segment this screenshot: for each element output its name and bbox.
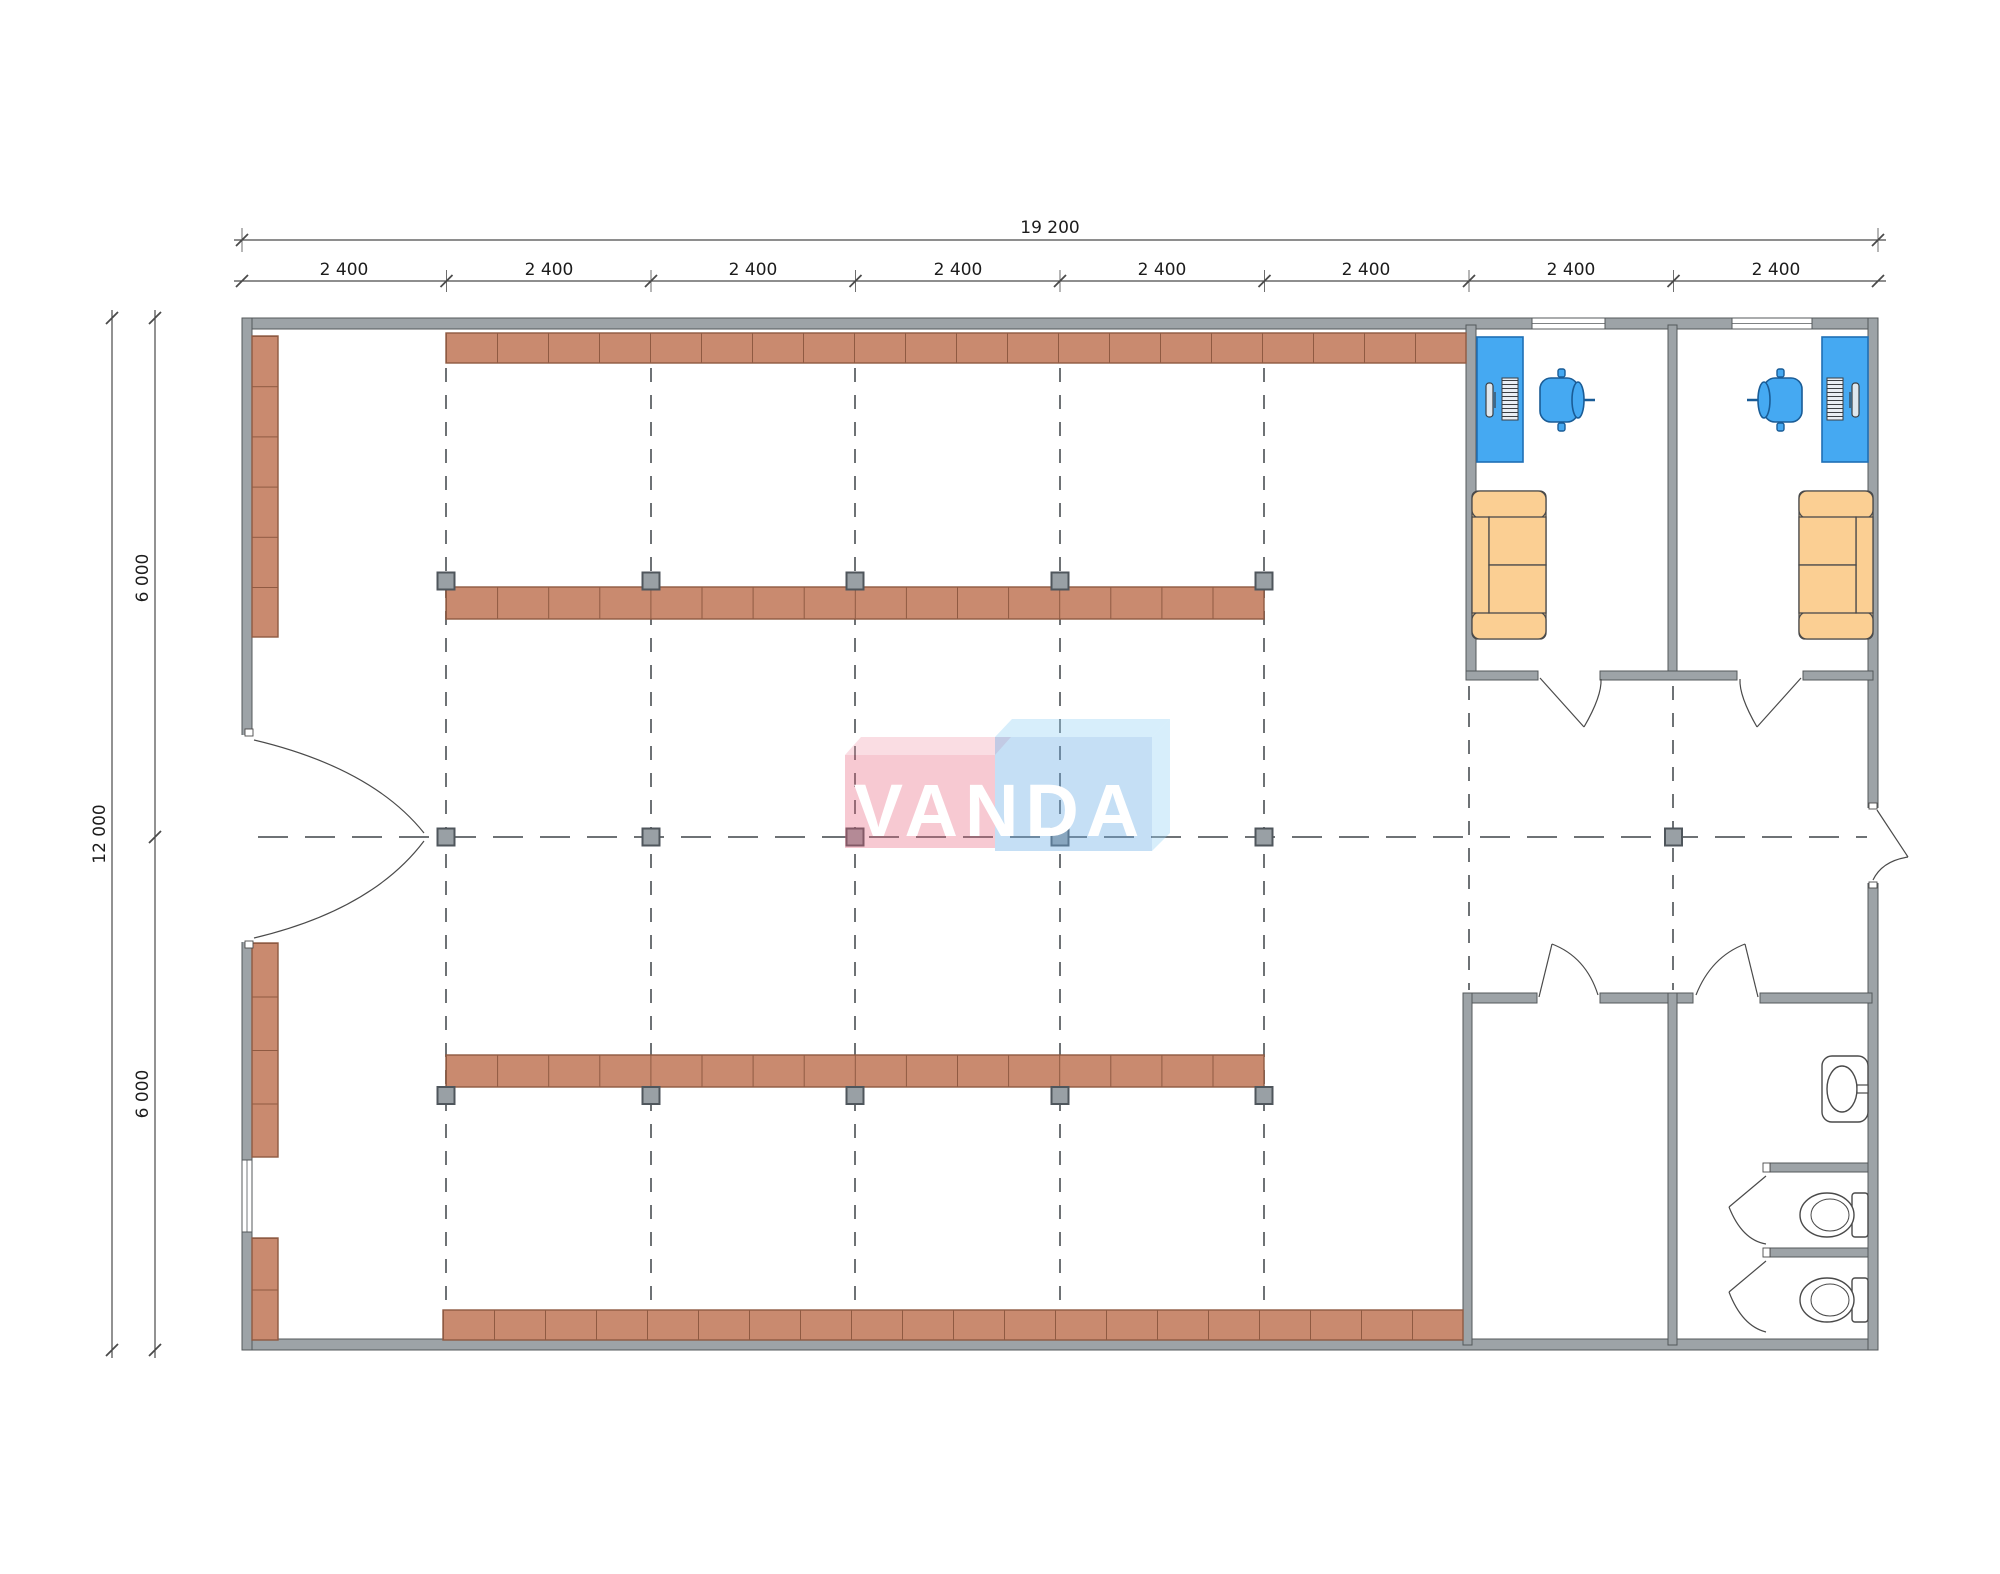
vanda-logo: VANDA — [845, 719, 1170, 852]
door-office-1 — [1540, 678, 1601, 727]
wall-backroom-top-seg — [1760, 993, 1872, 1003]
dim-bay-label: 2 400 — [1752, 260, 1801, 280]
wall-backroom-partition — [1668, 993, 1677, 1345]
column-marker — [643, 1087, 660, 1104]
column-marker — [1052, 573, 1069, 590]
dim-half-height-label: 6 000 — [133, 554, 153, 603]
door-office-2 — [1740, 678, 1801, 727]
door-stall-1 — [1729, 1163, 1770, 1244]
shelf-row-top — [446, 333, 1466, 363]
dim-half-height-label: 6 000 — [133, 1070, 153, 1119]
column-marker — [438, 829, 455, 846]
wall-backroom-top-seg — [1463, 993, 1537, 1003]
shelf-row-upper-middle — [446, 587, 1264, 619]
column-marker — [1665, 829, 1682, 846]
column-marker — [1256, 829, 1273, 846]
shelf-column-left-middle — [252, 943, 278, 1157]
column-marker — [1256, 573, 1273, 590]
floor-plan-svg: 19 200 2 400 2 400 2 400 2 400 2 400 2 4… — [0, 0, 2000, 1574]
shelf-column-left-lower — [252, 1238, 278, 1340]
dim-bay-label: 2 400 — [934, 260, 983, 280]
dim-bay-label: 2 400 — [1342, 260, 1391, 280]
wall-office-bottom-seg — [1600, 671, 1737, 680]
dim-total-width-label: 19 200 — [1020, 218, 1079, 238]
door-stall-2 — [1729, 1248, 1770, 1332]
keyboard-icon — [1502, 378, 1518, 420]
window-office-1 — [1532, 318, 1605, 329]
column-marker — [1256, 1087, 1273, 1104]
dim-bay-label: 2 400 — [1547, 260, 1596, 280]
wall-backroom-top-seg — [1600, 993, 1693, 1003]
door-backroom-1 — [1539, 944, 1598, 997]
monitor-icon — [1852, 383, 1859, 417]
office-chair — [1747, 369, 1802, 431]
keyboard-icon — [1827, 378, 1843, 420]
logo-pink-top-face — [845, 737, 1011, 755]
logo-blue-right-face — [1152, 719, 1170, 851]
office-1-furniture — [1472, 337, 1595, 639]
toilet — [1800, 1278, 1868, 1322]
toilet — [1800, 1193, 1868, 1237]
wall-office-bottom-seg — [1466, 671, 1538, 680]
door-backroom-2 — [1696, 944, 1758, 997]
logo-blue-top-face — [995, 719, 1170, 737]
dimension-top-bays — [234, 270, 1886, 292]
wall-office-bottom-seg — [1803, 671, 1873, 680]
office-chair — [1540, 369, 1595, 431]
column-marker — [438, 573, 455, 590]
dim-bay-label: 2 400 — [1138, 260, 1187, 280]
wall-stall-partition — [1770, 1163, 1868, 1172]
dimension-left-halves — [149, 310, 161, 1358]
sofa — [1799, 491, 1873, 639]
shelf-row-bottom — [443, 1310, 1463, 1340]
door-main-entrance — [245, 729, 424, 948]
column-marker — [438, 1087, 455, 1104]
sink — [1822, 1056, 1868, 1122]
window-left-wall — [242, 1160, 252, 1232]
bathroom-fixtures — [1800, 1056, 1868, 1322]
wall-backroom-left — [1463, 993, 1472, 1345]
wall-office-partition — [1668, 325, 1677, 677]
column-marker — [1052, 1087, 1069, 1104]
logo-text: VANDA — [854, 769, 1147, 852]
sofa — [1472, 491, 1546, 639]
shelf-column-left-upper — [252, 336, 278, 637]
monitor-icon — [1486, 383, 1493, 417]
wall-top — [242, 318, 1878, 329]
column-marker — [847, 573, 864, 590]
floor-plan-page: 19 200 2 400 2 400 2 400 2 400 2 400 2 4… — [0, 0, 2000, 1574]
column-marker — [847, 1087, 864, 1104]
dim-total-height-label: 12 000 — [90, 804, 110, 863]
window-office-2 — [1732, 318, 1812, 329]
column-marker — [643, 829, 660, 846]
wall-stall-partition — [1770, 1248, 1868, 1257]
column-marker — [643, 573, 660, 590]
shelf-row-lower-middle — [446, 1055, 1264, 1087]
dim-bay-label: 2 400 — [729, 260, 778, 280]
dim-bay-label: 2 400 — [320, 260, 369, 280]
office-2-furniture — [1747, 337, 1873, 639]
dim-bay-label: 2 400 — [525, 260, 574, 280]
